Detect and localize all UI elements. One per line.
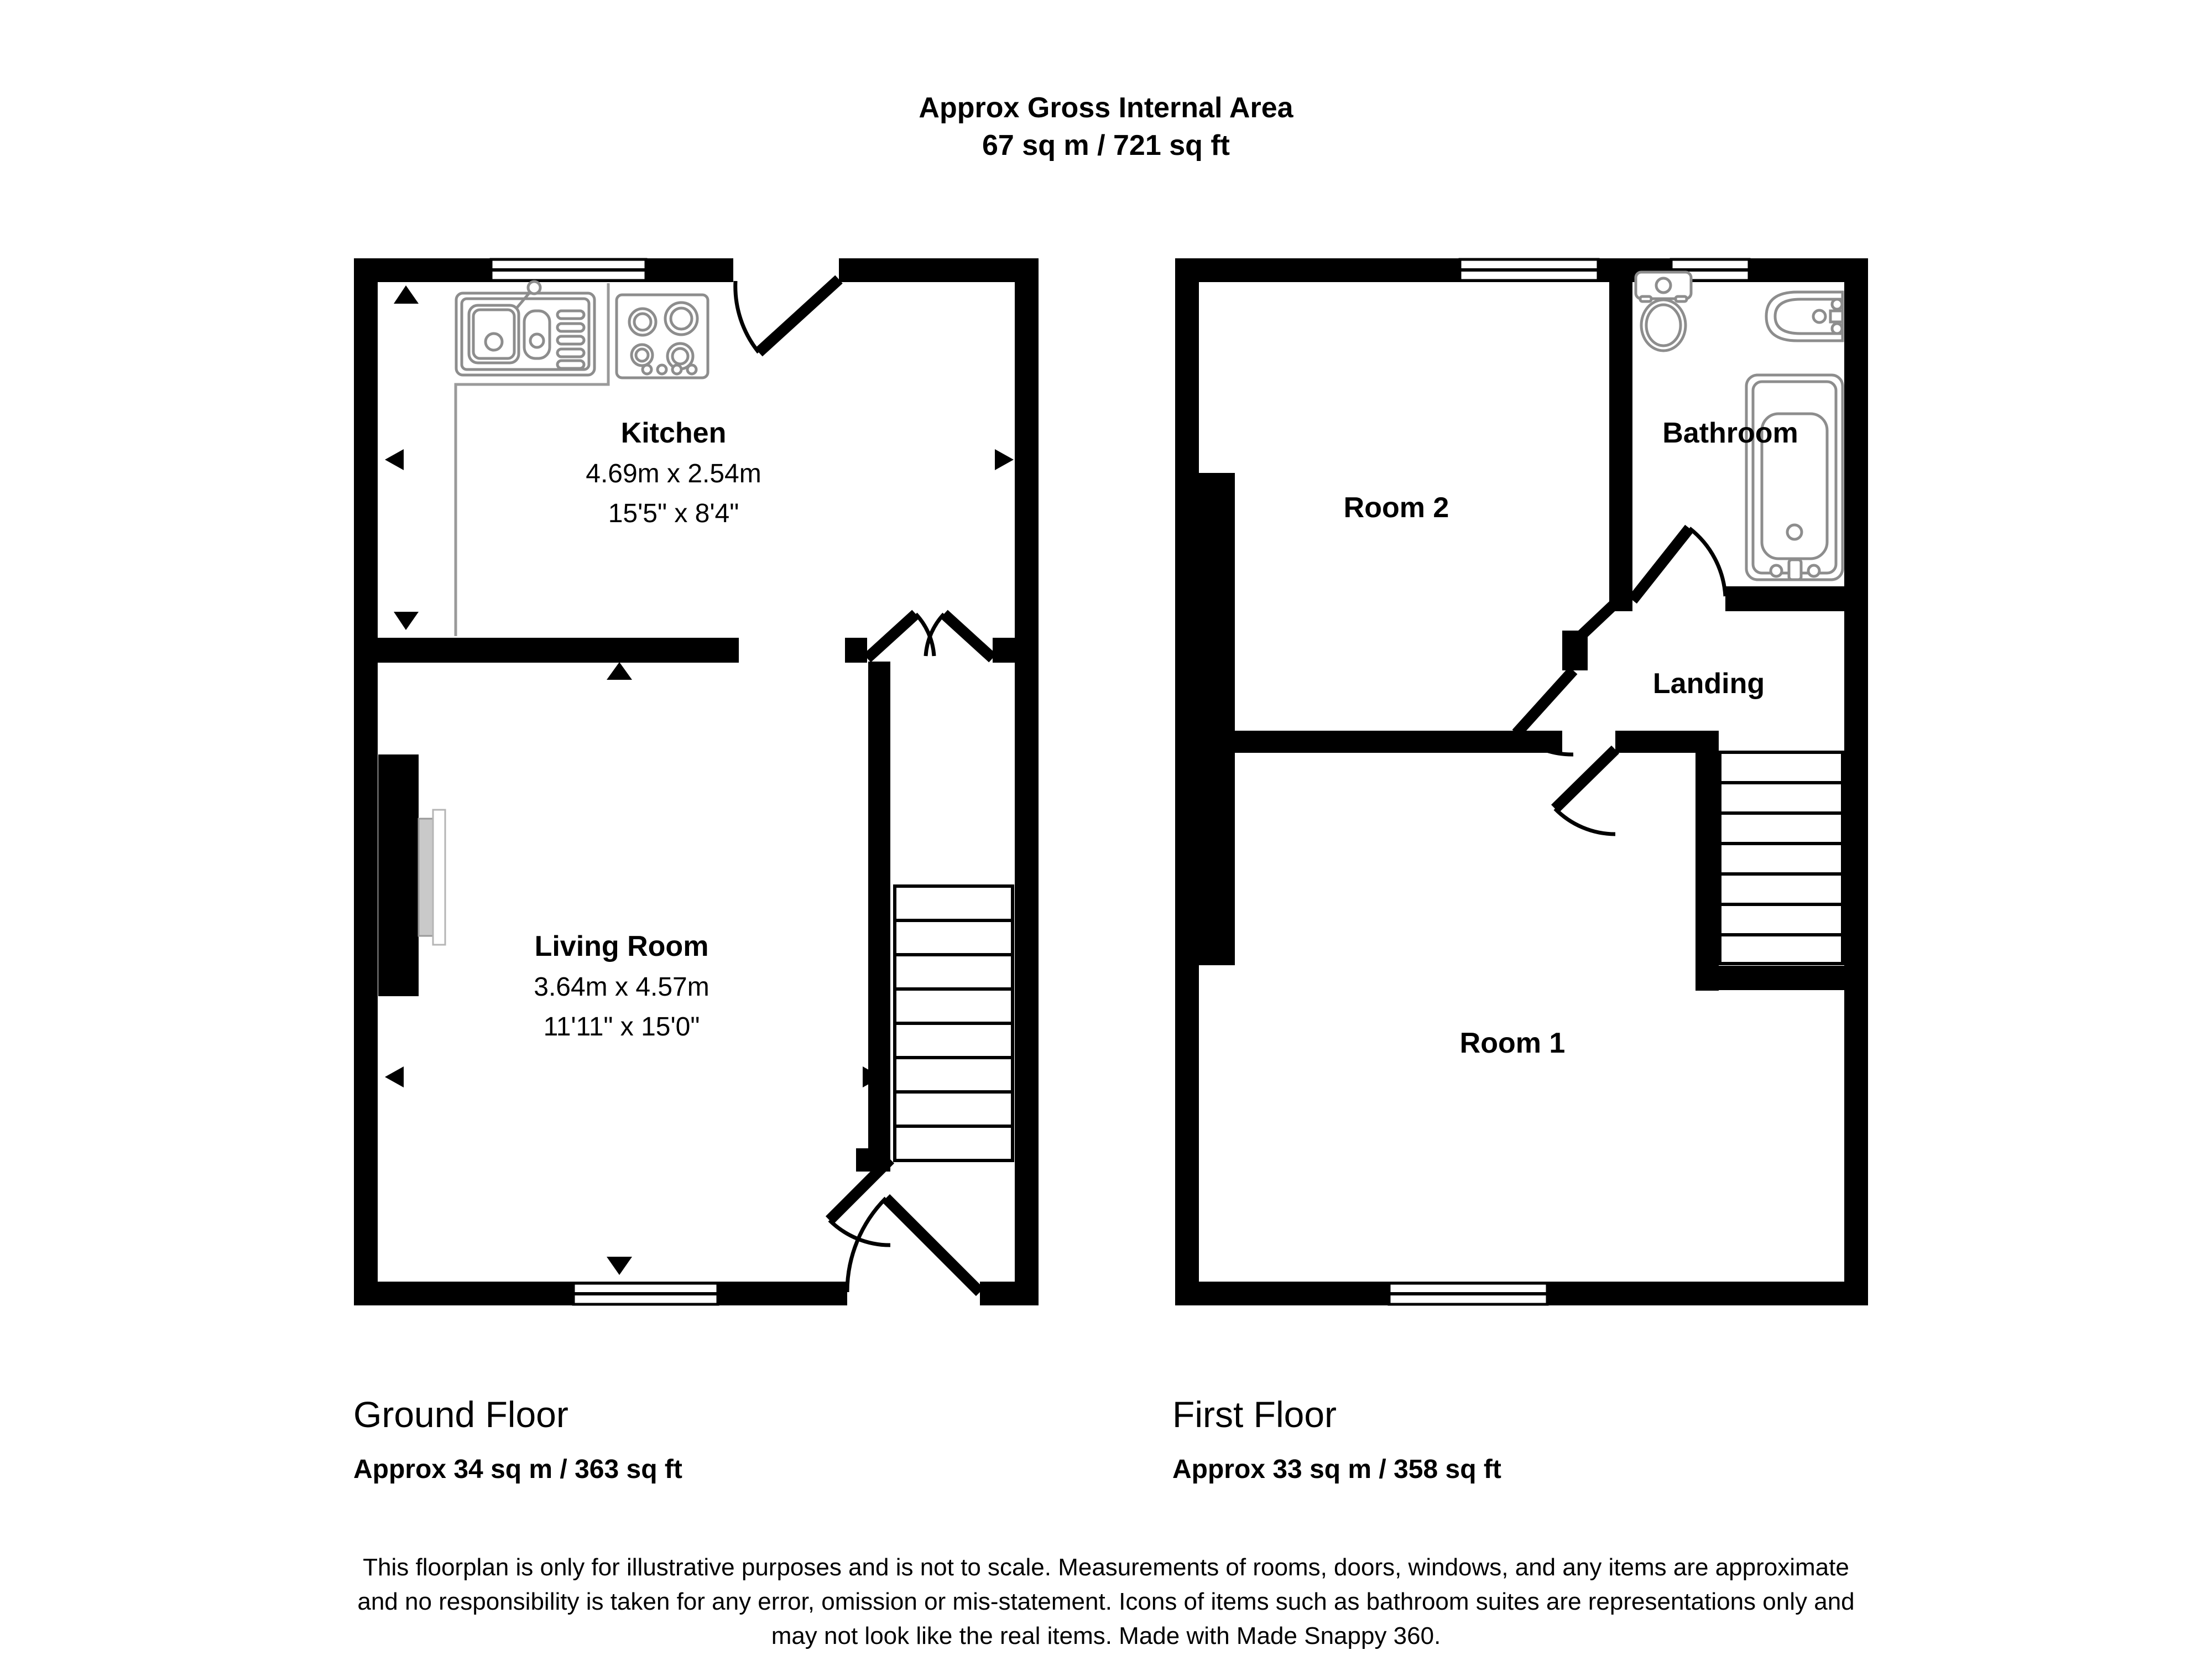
floorplan-image: Approx Gross Internal Area 67 sq m / 721…	[0, 0, 2212, 1676]
disclaimer-line-2: and no responsibility is taken for any e…	[357, 1588, 1854, 1615]
chimney-breast	[1175, 473, 1235, 965]
arrow-right-icon	[995, 449, 1014, 470]
living-room-dim-metric: 3.64m x 4.57m	[534, 972, 709, 1002]
basin-icon	[1766, 292, 1843, 341]
arrow-left-icon	[385, 449, 404, 470]
kitchen-dim-imperial: 15'5" x 8'4"	[608, 499, 739, 528]
arrow-up-icon	[607, 662, 632, 680]
fireplace-icon	[419, 810, 445, 945]
front-door-opening	[847, 1280, 980, 1307]
bathroom-door	[1632, 528, 1725, 600]
landing-label: Landing	[1653, 668, 1765, 700]
room1-door	[1555, 749, 1615, 834]
disclaimer-line-1: This floorplan is only for illustrative …	[363, 1554, 1849, 1581]
kitchen-hall-double-door	[867, 614, 993, 658]
room1-window	[1389, 1283, 1547, 1304]
disclaimer: This floorplan is only for illustrative …	[357, 1554, 1854, 1649]
gross-area-title: Approx Gross Internal Area	[919, 92, 1293, 124]
living-room-dim-imperial: 11'11" x 15'0"	[544, 1012, 700, 1042]
kitchen-dim-metric: 4.69m x 2.54m	[586, 459, 761, 488]
first-floor-name: First Floor	[1172, 1394, 1337, 1435]
ground-floor-caption: Ground Floor Approx 34 sq m / 363 sq ft	[353, 1394, 682, 1484]
staircase-first	[1720, 752, 1843, 964]
bathroom-divider-wall	[1609, 258, 1632, 611]
living-room-label: Living Room	[535, 930, 709, 962]
kitchen-living-divider-wall	[354, 638, 739, 663]
arrow-down-icon	[607, 1257, 632, 1275]
hob-icon	[617, 295, 708, 378]
bathroom-label: Bathroom	[1662, 417, 1798, 449]
kitchen-label: Kitchen	[621, 417, 727, 449]
kitchen-door	[735, 279, 839, 352]
toilet-icon	[1636, 272, 1691, 351]
kitchen-window	[491, 259, 646, 280]
front-door	[847, 1198, 980, 1292]
ground-floor-name: Ground Floor	[353, 1394, 568, 1435]
header: Approx Gross Internal Area 67 sq m / 721…	[919, 92, 1293, 162]
living-room-window	[573, 1283, 718, 1304]
first-floor-caption: First Floor Approx 33 sq m / 358 sq ft	[1172, 1394, 1501, 1484]
room2-window	[1460, 259, 1598, 280]
floorplan-page: Approx Gross Internal Area 67 sq m / 721…	[0, 0, 2212, 1676]
disclaimer-line-3: may not look like the real items. Made w…	[771, 1622, 1441, 1649]
arrow-left-icon	[385, 1066, 404, 1087]
room-divider-wall	[1234, 731, 1562, 753]
gross-area-value: 67 sq m / 721 sq ft	[982, 129, 1230, 162]
arrow-down-icon	[394, 612, 419, 630]
arrow-up-icon	[394, 285, 419, 304]
bathroom-bottom-wall	[1725, 586, 1844, 611]
stair-wall	[1695, 731, 1719, 991]
ground-floor-area: Approx 34 sq m / 363 sq ft	[353, 1455, 682, 1484]
room2-label: Room 2	[1344, 492, 1449, 524]
first-floor-plan: Room 2 Bathroom Landing Room 1	[1175, 258, 1868, 1305]
kitchen-door-opening	[733, 257, 839, 284]
room1-label: Room 1	[1460, 1027, 1566, 1059]
first-floor-area: Approx 33 sq m / 358 sq ft	[1172, 1455, 1501, 1484]
chimney-breast	[378, 754, 419, 996]
staircase-ground	[895, 886, 1013, 1160]
bathtub-icon	[1746, 375, 1843, 580]
sink-icon	[456, 282, 594, 375]
ground-floor-plan: Kitchen 4.69m x 2.54m 15'5" x 8'4" Livin…	[354, 257, 1039, 1307]
